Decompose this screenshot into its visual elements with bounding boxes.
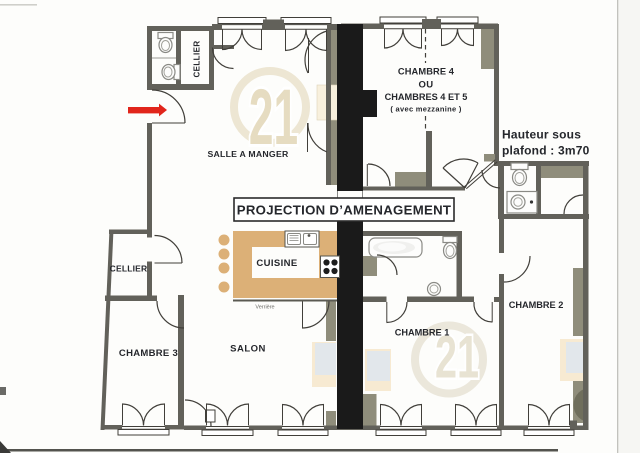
svg-text:CUISINE: CUISINE xyxy=(256,258,297,269)
svg-text:( avec mezzanine ): ( avec mezzanine ) xyxy=(390,105,461,114)
svg-text:PROJECTION D’AMENAGEMENT: PROJECTION D’AMENAGEMENT xyxy=(237,203,452,218)
svg-text:CELLIER: CELLIER xyxy=(193,40,202,77)
svg-text:OU: OU xyxy=(418,80,433,91)
svg-text:CHAMBRE 1: CHAMBRE 1 xyxy=(395,328,450,338)
svg-text:CHAMBRE 4: CHAMBRE 4 xyxy=(398,67,455,77)
svg-text:21: 21 xyxy=(249,72,298,161)
svg-text:plafond : 3m70: plafond : 3m70 xyxy=(502,144,590,158)
svg-text:SALON: SALON xyxy=(230,344,266,355)
svg-text:CHAMBRE 2: CHAMBRE 2 xyxy=(509,300,564,310)
svg-text:CELLIER: CELLIER xyxy=(110,264,148,274)
svg-text:CHAMBRE 3: CHAMBRE 3 xyxy=(119,348,178,359)
svg-text:Verrière: Verrière xyxy=(255,305,274,311)
svg-text:Hauteur sous: Hauteur sous xyxy=(502,128,581,142)
svg-text:SALLE A MANGER: SALLE A MANGER xyxy=(207,149,289,159)
svg-text:CHAMBRES 4 ET 5: CHAMBRES 4 ET 5 xyxy=(385,92,468,102)
